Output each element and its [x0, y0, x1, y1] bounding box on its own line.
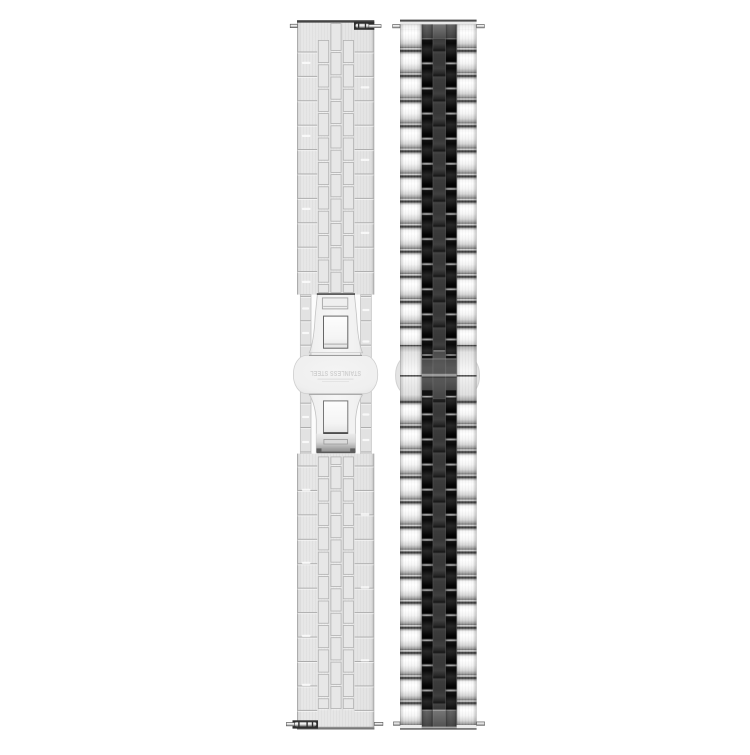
- svg-text:STAINLESS STEEL: STAINLESS STEEL: [310, 369, 361, 377]
